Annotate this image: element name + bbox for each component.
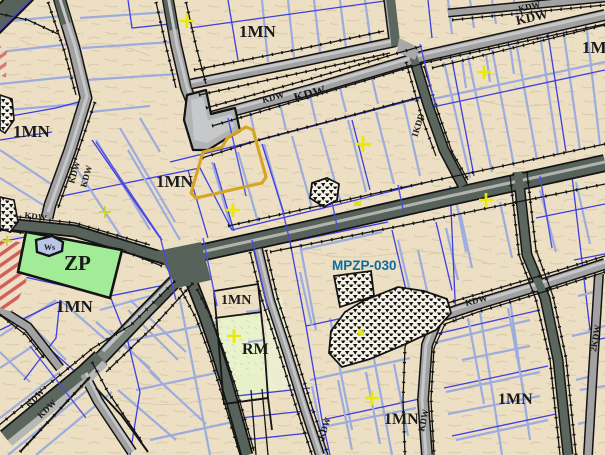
svg-text:1MN: 1MN xyxy=(239,22,277,41)
svg-text:RM: RM xyxy=(242,341,269,358)
svg-text:1MN: 1MN xyxy=(156,172,194,191)
svg-text:1MN: 1MN xyxy=(498,391,533,408)
svg-text:1MN: 1MN xyxy=(13,122,51,141)
svg-text:MPZP-030: MPZP-030 xyxy=(332,258,397,273)
svg-text:1MN: 1MN xyxy=(56,297,94,316)
svg-text:ZP: ZP xyxy=(64,251,91,275)
svg-text:Ws: Ws xyxy=(44,243,55,252)
svg-text:1M: 1M xyxy=(582,38,605,57)
svg-text:1MN: 1MN xyxy=(384,411,419,428)
svg-text:1MN: 1MN xyxy=(221,293,251,308)
